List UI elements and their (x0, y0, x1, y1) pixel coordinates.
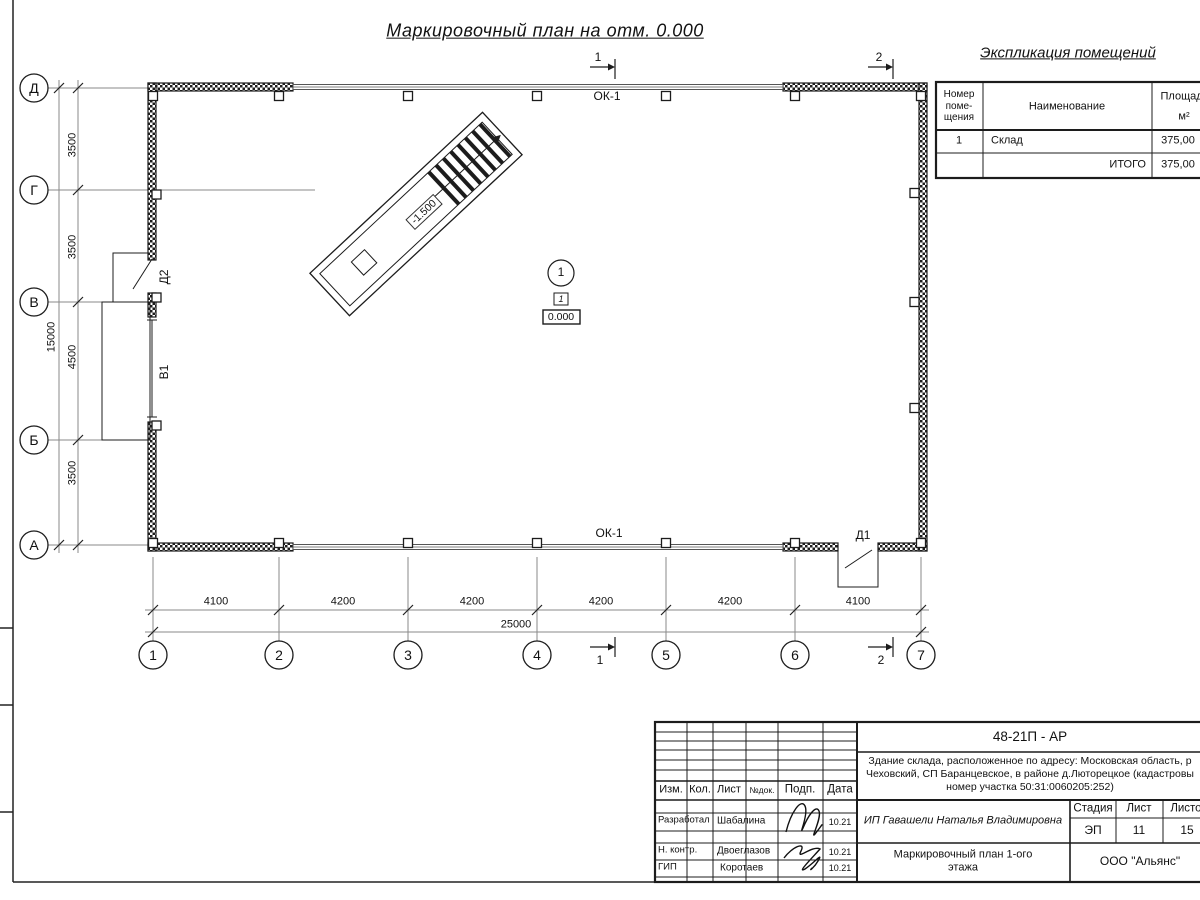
schedule-row-area: 375,00 (1161, 135, 1195, 148)
axis-col-5: 5 (662, 647, 670, 663)
axis-row-a: А (29, 537, 38, 553)
tb-client: ИП Гавашели Наталья Владимировна (864, 815, 1062, 828)
entry-porches (102, 253, 878, 587)
column-markers (149, 92, 926, 548)
room-tag: 1 (558, 294, 563, 304)
tb-col-list: Лист (717, 784, 741, 797)
tb-desc-line2: Чеховский, СП Баранцевское, в районе д.Л… (866, 768, 1194, 780)
tb-company: ООО "Альянс" (1100, 855, 1180, 869)
dim-h-3: 4200 (460, 596, 484, 609)
walls (148, 83, 927, 551)
tb-sheet-label: Лист (1127, 802, 1152, 815)
axis-col-3: 3 (404, 647, 412, 663)
dim-h-4: 4200 (589, 596, 613, 609)
tb-sheet-value: 11 (1133, 824, 1145, 838)
dim-v-2: 3500 (67, 235, 80, 259)
dim-h-total: 25000 (501, 619, 532, 632)
tb-sheets-label: Листов (1170, 802, 1200, 815)
tb-col-podp: Подп. (785, 783, 816, 796)
section-2-bottom: 2 (878, 654, 885, 668)
window-label-bottom: ОК-1 (596, 527, 623, 541)
axis-row-b: Б (29, 432, 38, 448)
tb-date-developed: 10.21 (829, 817, 852, 827)
tb-doc-code: 48-21П - АР (993, 729, 1067, 745)
dim-h-5: 4200 (718, 596, 742, 609)
axis-col-4: 4 (533, 647, 541, 663)
room-number-bubble: 1 (558, 266, 565, 280)
dim-v-3: 4500 (67, 345, 80, 369)
tb-stage-label: Стадия (1073, 802, 1112, 815)
schedule-row-name: Склад (991, 135, 1023, 148)
dim-v-total: 15000 (46, 322, 59, 353)
schedule-col-area-unit: м² (1178, 111, 1189, 124)
axis-row-g: Г (30, 182, 38, 198)
window-label-top: ОК-1 (594, 90, 621, 104)
axis-row-v: В (29, 294, 38, 310)
dim-v-4: 3500 (67, 461, 80, 485)
sheet-title: Маркировочный план на отм. 0.000 (386, 21, 704, 42)
schedule-total-value: 375,00 (1161, 159, 1195, 172)
schedule-col-name: Наименование (1029, 101, 1105, 114)
schedule-row-number: 1 (956, 135, 962, 148)
tb-date-gip: 10.21 (829, 863, 852, 873)
dim-h-6: 4100 (846, 596, 870, 609)
door-label-d1: Д1 (856, 529, 871, 543)
axis-row-d: Д (29, 80, 38, 96)
tb-desc-line3: номер участка 50:31:0060205:252) (946, 781, 1114, 793)
section-markers (590, 59, 893, 657)
tb-role-gip: ГИП (658, 863, 677, 874)
tb-stage-value: ЭП (1084, 824, 1101, 838)
schedule-total-label: ИТОГО (1109, 159, 1146, 172)
axis-col-6: 6 (791, 647, 799, 663)
tb-sheets-value: 15 (1180, 824, 1193, 838)
tb-drawing-name: Маркировочный план 1-ого этажа (894, 848, 1033, 873)
section-2-top: 2 (876, 51, 883, 65)
door-swing-d1 (845, 550, 872, 568)
tb-col-kol: Кол. (689, 784, 711, 797)
tb-role-developed: Разработал (658, 816, 710, 827)
window-band-top (293, 85, 783, 90)
tb-name-gip: Коротаев (720, 862, 763, 874)
gate-v1-opening (147, 320, 157, 417)
tb-role-ncontrol: Н. контр. (658, 846, 697, 857)
axis-col-1: 1 (149, 647, 157, 663)
axis-col-2: 2 (275, 647, 283, 663)
sheet-frame (0, 0, 1200, 882)
schedule-col-area: Площадь, (1161, 91, 1200, 104)
room-schedule-title: Экспликация помещений (980, 44, 1156, 61)
tb-col-izm: Изм. (659, 784, 683, 797)
dim-h-1: 4100 (204, 596, 228, 609)
tb-name-developed: Шабалина (717, 815, 765, 827)
door-label-d2: Д2 (158, 270, 172, 285)
section-1-bottom: 1 (597, 654, 604, 668)
schedule-col-number: Номер поме- щения (944, 89, 975, 124)
tb-desc-line1: Здание склада, расположенное по адресу: … (868, 755, 1191, 767)
tb-name-ncontrol: Двоеглазов (717, 845, 770, 857)
drawing-sheet: Маркировочный план на отм. 0.000 Эксплик… (0, 0, 1200, 900)
dim-v-1: 3500 (67, 133, 80, 157)
level-mark: 0.000 (548, 311, 574, 323)
tb-col-ndok: №док. (750, 786, 775, 796)
gate-label-v1: В1 (158, 365, 172, 380)
section-1-top: 1 (595, 51, 602, 65)
tb-date-ncontrol: 10.21 (829, 847, 852, 857)
dim-h-2: 4200 (331, 596, 355, 609)
tb-col-data: Дата (827, 783, 852, 796)
door-swing-d2 (133, 259, 152, 289)
axis-col-7: 7 (917, 647, 925, 663)
